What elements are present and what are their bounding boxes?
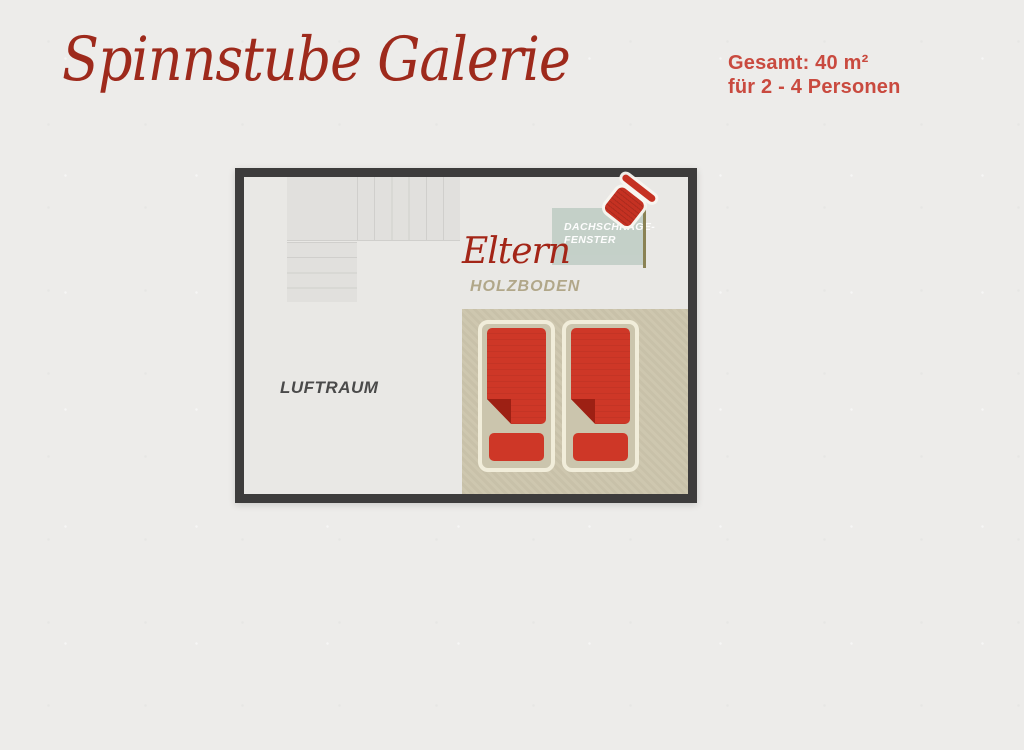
floorplan: DACHSCHRÄGE- FENSTER Eltern HOLZBODEN LU… — [235, 168, 697, 503]
roof-window-label-line2: FENSTER — [564, 234, 616, 246]
bed-left-blanket — [487, 328, 546, 424]
bed-right-blanket — [571, 328, 630, 424]
stairs-upper-run — [357, 177, 460, 241]
stairs-lower-run — [287, 242, 357, 302]
bed-left — [478, 320, 555, 472]
bed-right-pillow — [573, 433, 628, 461]
bed-right — [562, 320, 639, 472]
page-title: Spinnstube Galerie — [62, 26, 570, 93]
bed-left-blanket-fill — [487, 328, 546, 424]
total-area-text: Gesamt: 40 m² — [728, 51, 901, 75]
stairs-landing — [287, 177, 357, 241]
floor-material-label: HOLZBODEN — [470, 278, 580, 296]
void-label: LUFTRAUM — [280, 378, 378, 398]
summary-info: Gesamt: 40 m² für 2 - 4 Personen — [728, 51, 901, 99]
page: Spinnstube Galerie Gesamt: 40 m² für 2 -… — [0, 0, 1024, 750]
bed-right-blanket-fill — [571, 328, 630, 424]
bed-left-pillow — [489, 433, 544, 461]
capacity-text: für 2 - 4 Personen — [728, 75, 901, 99]
room-label: Eltern — [462, 231, 570, 272]
